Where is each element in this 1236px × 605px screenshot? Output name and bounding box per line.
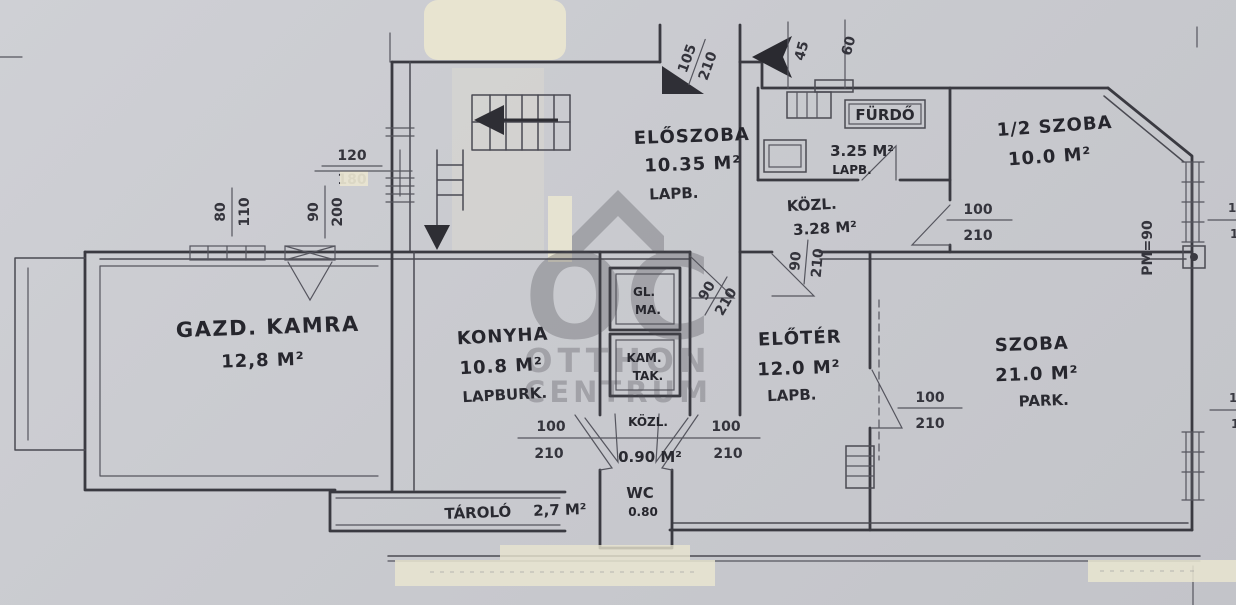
dim-h: 210 [809,248,828,279]
room-szoba: SZOBA 21.0 M² PARK. [994,332,1080,411]
dim-kozl-door-b: 90 210 [786,239,828,286]
room-kozl-felso: KÖZL. 3.28 M² [786,193,857,240]
dim-w: 100 [536,419,565,435]
room-name: FÜRDŐ [855,104,914,124]
column-symbol [1183,246,1205,268]
edge-frag: 1 [1229,391,1236,405]
room-eloter: ELŐTÉR 12.0 M² LAPB. [756,326,844,406]
room-floor: LAPB. [832,163,871,177]
room-area: 10.35 M² [644,152,742,176]
wall-top-right [740,62,1108,88]
stair-arrow-down [424,225,450,250]
room-floor: PARK. [1018,391,1069,411]
shaft1-line1: GL. [633,285,655,299]
room-name: SZOBA [994,333,1069,357]
dim-left-door: 90 200 [306,186,346,238]
room-name: ELŐTÉR [758,326,842,351]
dim-w: 100 [915,390,944,406]
dim-top-window: 120 180 [315,148,412,196]
dim-h: 210 [713,446,742,462]
dim-w: 120 [337,148,366,164]
dim-h: 200 [330,197,346,226]
dim-w: 100 [963,202,992,218]
patch-bottom-left [395,560,715,586]
room-area: 12,8 M² [221,349,305,373]
room-area: 21.0 M² [995,362,1079,386]
dim-szoba-door: 100 210 [898,390,962,432]
room-fel-szoba: 1/2 SZOBA 10.0 M² [996,112,1115,171]
room-floor: LAPB. [767,385,817,405]
furdo-basin [764,140,806,172]
floorplan-scan: OC OTTHON CENTRUM ELŐSZOBA 10.35 M² LAPB… [0,0,1236,605]
edge-frag: 1 [1228,201,1236,215]
room-name: KÖZL. [786,194,837,216]
room-area: 0.90 M² [618,448,682,466]
shaft1-line2: MA. [635,303,661,317]
dim-h: 110 [237,197,253,226]
room-name: GAZD. KAMRA [175,312,360,342]
room-floor: LAPB. [649,184,699,204]
room-furdo: FÜRDŐ 3.25 M² LAPB. [830,104,914,177]
patch-top [424,0,566,60]
shaft2-line1: KAM. [626,351,661,365]
room-wc: WC 0.80 [626,484,658,519]
room-name: 1/2 SZOBA [996,112,1113,141]
shaft2-line2: TAK. [633,369,663,383]
dimension-labels: 80 110 90 200 120 180 105 210 45 60 100 … [213,33,1236,462]
room-gazd-kamra: GAZD. KAMRA 12,8 M² [175,312,361,374]
dim-h: 210 [534,446,563,462]
door-felszoba [912,205,950,245]
room-area: 10.8 M² [459,354,543,379]
room-labels: ELŐSZOBA 10.35 M² LAPB. FÜRDŐ 3.25 M² LA… [175,104,1115,523]
bottom-patches [395,545,1236,586]
dim-step-b: 60 [839,34,860,57]
dim-w: 80 [213,202,229,222]
edge-ticks [0,27,1197,62]
room-name: WC [626,484,654,502]
room-name: KÖZL. [628,414,668,429]
door-szoba [872,370,902,428]
room-name: ELŐSZOBA [633,123,750,149]
entry-arrow-icon [752,36,792,78]
wall-annex [15,258,85,450]
dim-w: 90 [306,202,322,222]
patch-180 [340,171,368,186]
window-crossed [285,246,335,300]
room-area: 3.25 M² [830,142,894,160]
dim-h: 210 [915,416,944,432]
room-name: TÁROLÓ [444,502,511,523]
dim-parapet: PM=90 [1140,220,1156,276]
room-area: 10.0 M² [1007,144,1092,171]
room-area: 0.80 [628,505,658,519]
dim-left-window: 80 110 [213,188,253,236]
room-tarolo: TÁROLÓ 2,7 M² [444,499,587,523]
floorplan-drawing: OC OTTHON CENTRUM ELŐSZOBA 10.35 M² LAPB… [0,0,1236,605]
room-area: 3.28 M² [793,218,858,239]
room-eloszoba: ELŐSZOBA 10.35 M² LAPB. [633,123,752,204]
dim-w: 100 [711,419,740,435]
patch-wc-bottom [500,545,690,560]
room-area: 12.0 M² [757,357,841,381]
furdo-window-radiator [787,80,853,118]
dim-felszoba-door: 100 210 [947,202,1012,244]
room-konyha: KONYHA 10.8 M² LAPBURK. [456,324,552,407]
edge-frag: 1 [1230,227,1236,241]
room-area: 2,7 M² [533,500,587,520]
edge-frag: 1 [1231,417,1236,431]
dim-step-a: 45 [792,39,812,62]
dim-edge-fragments: 1 1 1 1 [1208,201,1236,431]
dim-h: 210 [963,228,992,244]
wall-gazdkamra [85,252,335,490]
watermark-line2: CENTRUM [524,375,712,409]
porch-walls [660,25,740,62]
dim-w: 105 [675,42,700,75]
dim-w: 90 [787,250,805,271]
wall-corner-diagonal-inner [1104,96,1184,162]
